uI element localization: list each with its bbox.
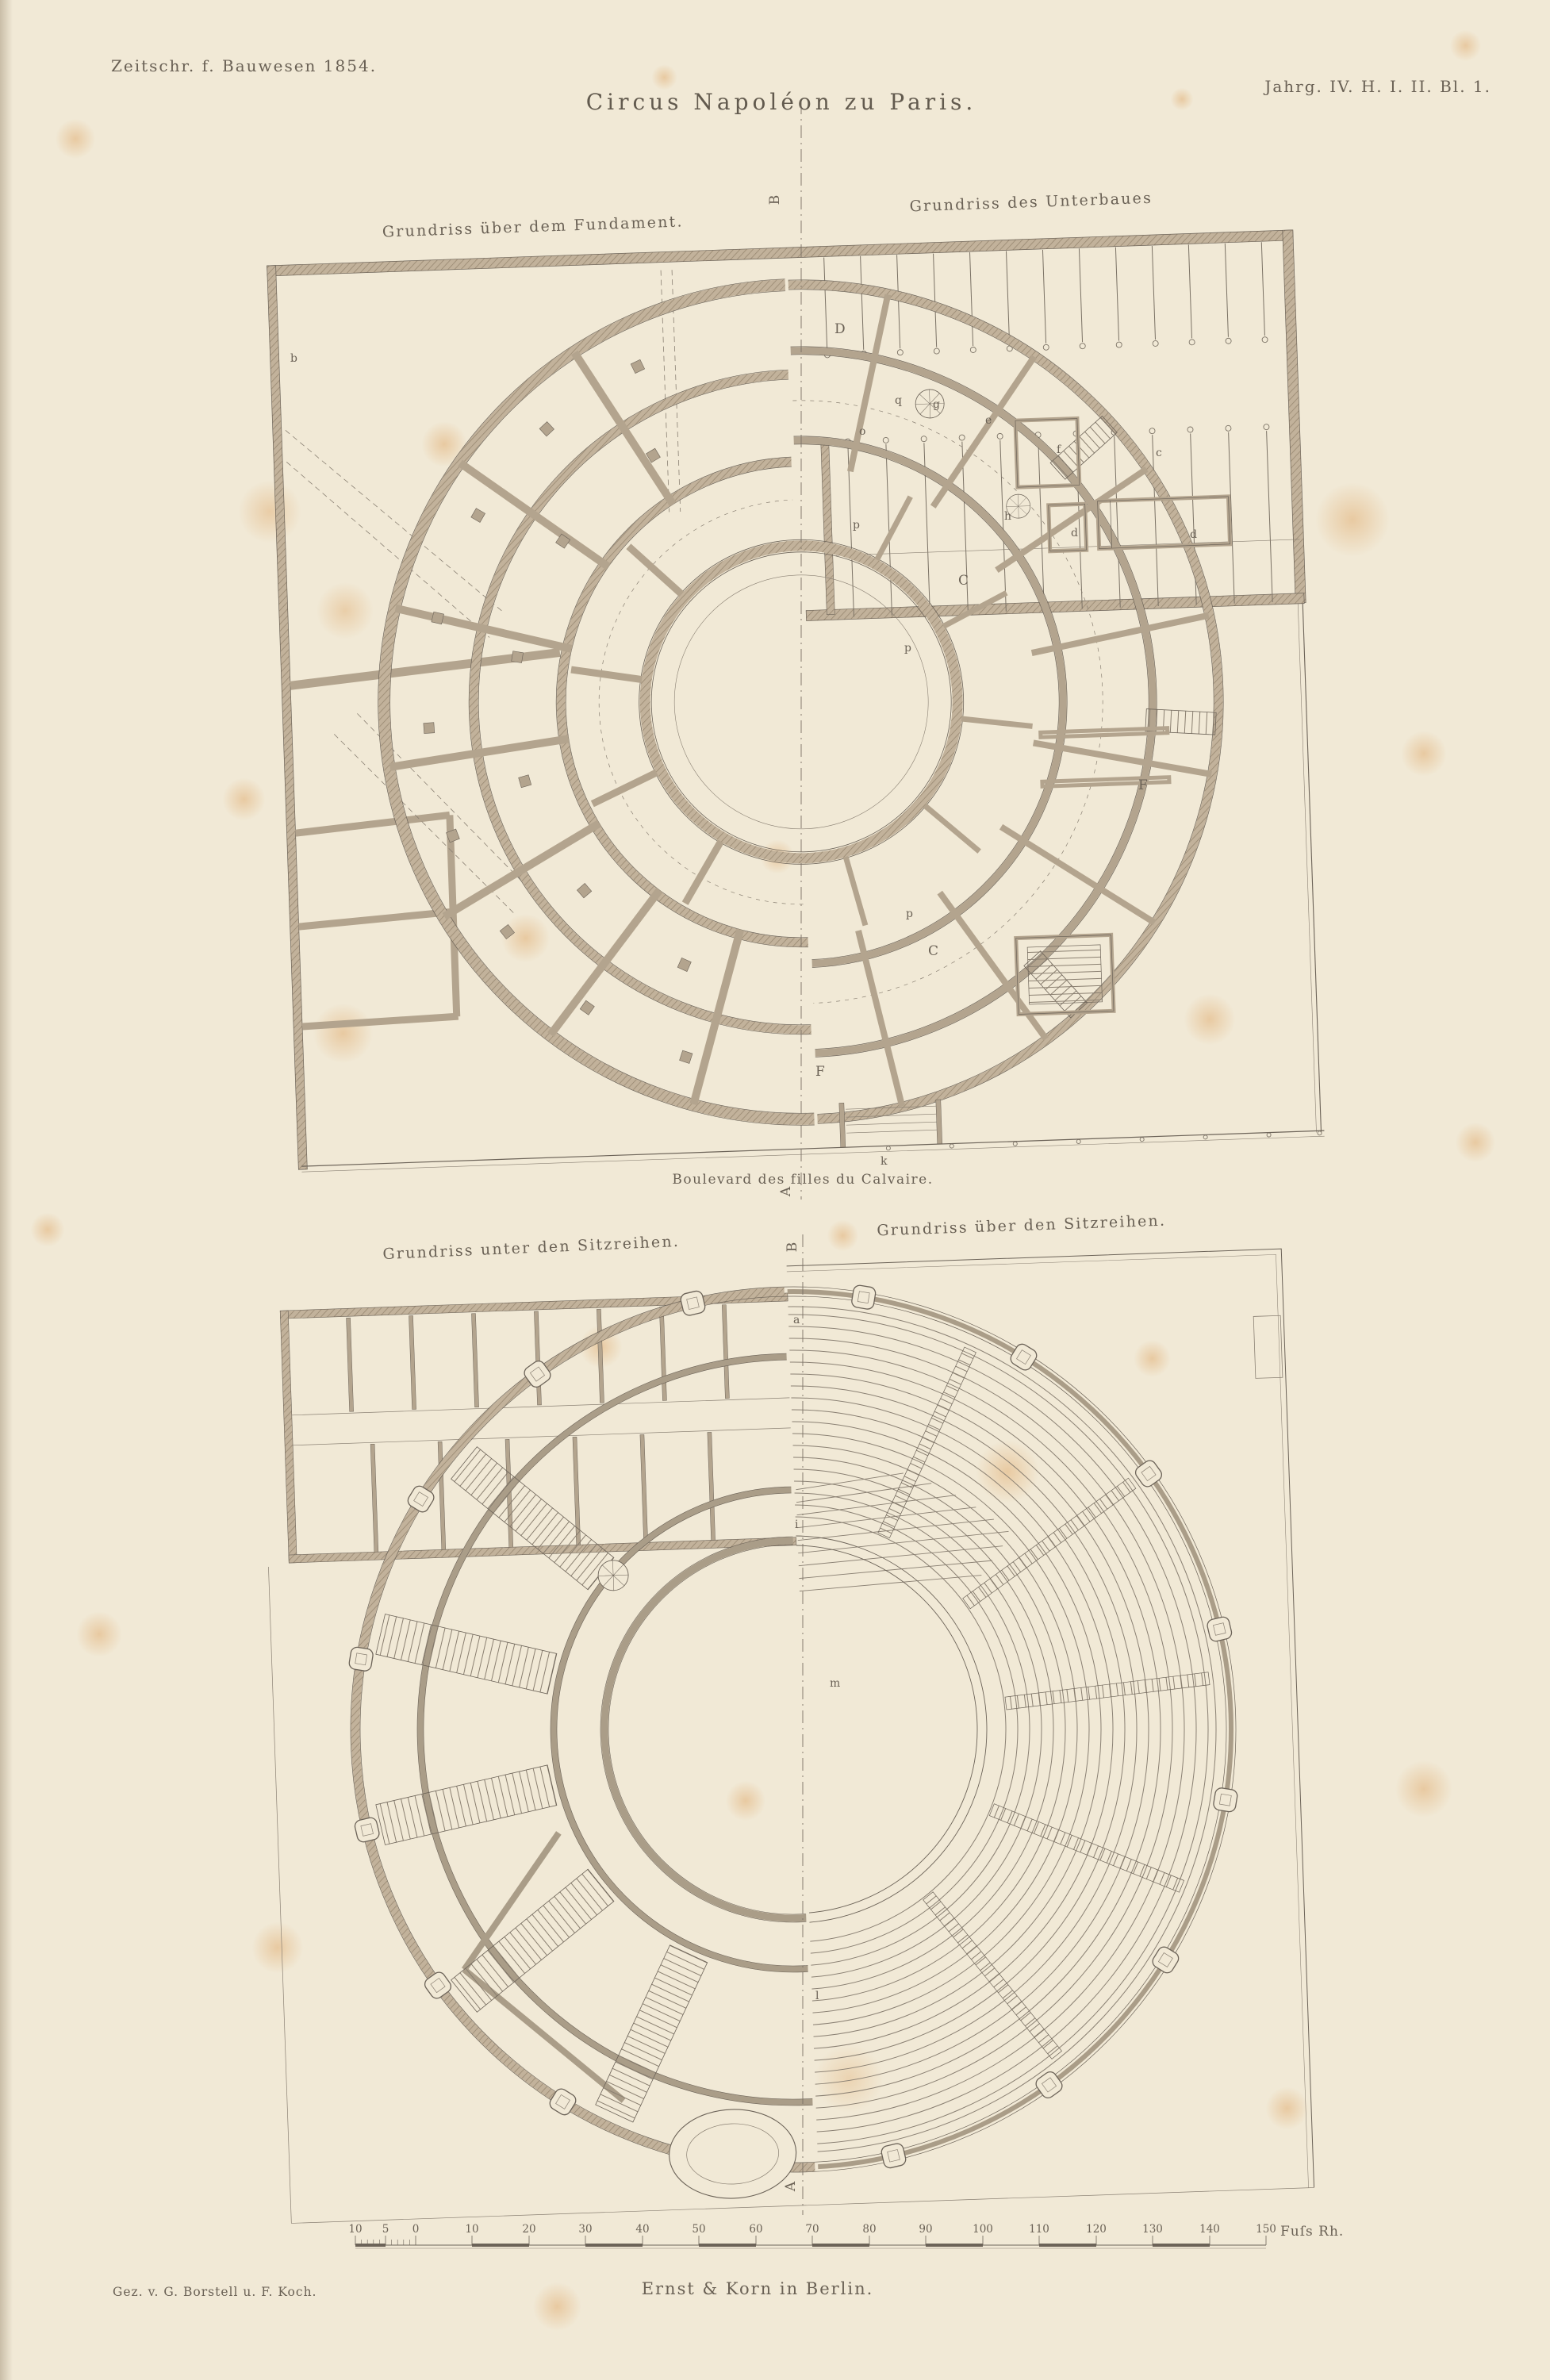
lower-plan xyxy=(259,1249,1314,2223)
scale-numbers: 10 5 0 10 20 30 40 50 60 70 80 90 100 11… xyxy=(348,2223,1276,2236)
journal-header-text: Zeitschr. f. Bauwesen 1854. xyxy=(111,56,377,75)
plan-letter: D xyxy=(834,321,846,337)
plan-letter: m xyxy=(830,1677,840,1690)
plan-letter: C xyxy=(958,573,969,589)
scale-number: 10 xyxy=(465,2223,478,2236)
engraving-svg: Zeitschr. f. Bauwesen 1854. Circus Napol… xyxy=(0,0,1550,2380)
plan-letter: A xyxy=(783,2181,799,2192)
plan-letter: b xyxy=(290,352,297,365)
turret xyxy=(851,1284,877,1310)
caption-upper-right: Grundriss des Unterbaues xyxy=(909,190,1153,216)
substructure-stairs xyxy=(1005,413,1227,1019)
footer-publisher: Ernst & Korn in Berlin. xyxy=(642,2279,874,2298)
scale-number: 40 xyxy=(635,2223,649,2236)
upper-plan xyxy=(267,230,1325,1172)
caption-upper-left: Grundriss über dem Fundament. xyxy=(382,213,684,240)
scale-number: 10 xyxy=(348,2223,362,2236)
plan-letter: h xyxy=(1004,510,1011,523)
plan-letter: g xyxy=(933,398,940,411)
lower-site-boundary xyxy=(259,1249,1314,2223)
boulevard-edge xyxy=(301,1130,1324,1172)
lower-plan-letters: B a i m l A xyxy=(783,1242,840,2192)
plan-letter: C xyxy=(928,943,938,959)
plan-letter: c xyxy=(1156,447,1162,459)
plan-letter: F xyxy=(815,1064,825,1080)
caption-lower-left: Grundriss unter den Sitzreihen. xyxy=(382,1233,680,1263)
scale-number: 110 xyxy=(1029,2223,1049,2236)
plan-letter: d xyxy=(1190,528,1197,541)
upper-yard xyxy=(276,270,697,1027)
scale-number: 100 xyxy=(973,2223,993,2236)
scale-bar: 10 5 0 10 20 30 40 50 60 70 80 90 100 11… xyxy=(348,2223,1344,2248)
entrance-lobby xyxy=(668,2107,798,2201)
scale-number: 150 xyxy=(1256,2223,1276,2236)
plan-letter: k xyxy=(881,1155,888,1168)
scale-unit-label: Fuſs Rh. xyxy=(1280,2224,1344,2240)
plan-letter: o xyxy=(859,425,865,438)
plan-letter: F xyxy=(1138,777,1148,793)
scale-number: 0 xyxy=(412,2223,420,2236)
scale-number: 5 xyxy=(382,2223,389,2236)
plan-letter: p xyxy=(853,519,860,532)
plan-letter: e xyxy=(985,414,992,427)
scale-number: 140 xyxy=(1199,2223,1220,2236)
plan-letter: d xyxy=(1071,527,1078,539)
spiral-stair xyxy=(915,389,945,418)
scale-number: 130 xyxy=(1142,2223,1163,2236)
scale-number: 30 xyxy=(578,2223,592,2236)
scale-number: 20 xyxy=(522,2223,535,2236)
plan-letter: q xyxy=(895,394,902,407)
scale-number: 60 xyxy=(749,2223,762,2236)
footer-credit: Gez. v. G. Borstell u. F. Koch. xyxy=(113,2285,317,2299)
caption-street: Boulevard des filles du Calvaire. xyxy=(672,1172,933,1188)
scale-number: 50 xyxy=(692,2223,705,2236)
stall xyxy=(821,257,830,358)
plan-letter: p xyxy=(904,642,911,654)
scale-number: 120 xyxy=(1086,2223,1107,2236)
plan-letter: A xyxy=(778,1186,794,1197)
scale-number: 80 xyxy=(862,2223,876,2236)
plan-letter: i xyxy=(795,1518,799,1531)
stair-flight xyxy=(596,1945,708,2122)
caption-lower-right: Grundriss über den Sitzreihen. xyxy=(877,1212,1166,1240)
scale-number: 90 xyxy=(919,2223,932,2236)
scale-number: 70 xyxy=(805,2223,819,2236)
plan-letter: B xyxy=(785,1242,800,1253)
engraved-plate: Zeitschr. f. Bauwesen 1854. Circus Napol… xyxy=(0,0,1550,2380)
plan-letter: a xyxy=(793,1314,800,1326)
plan-letter: p xyxy=(906,908,913,920)
arena-circle-lower xyxy=(594,1530,993,1929)
plan-letter: l xyxy=(815,1990,819,2002)
plan-letter: B xyxy=(767,195,783,205)
plate-title: Circus Napoléon zu Paris. xyxy=(586,89,977,115)
issue-reference-text: Jahrg. IV. H. I. II. Bl. 1. xyxy=(1263,77,1491,96)
